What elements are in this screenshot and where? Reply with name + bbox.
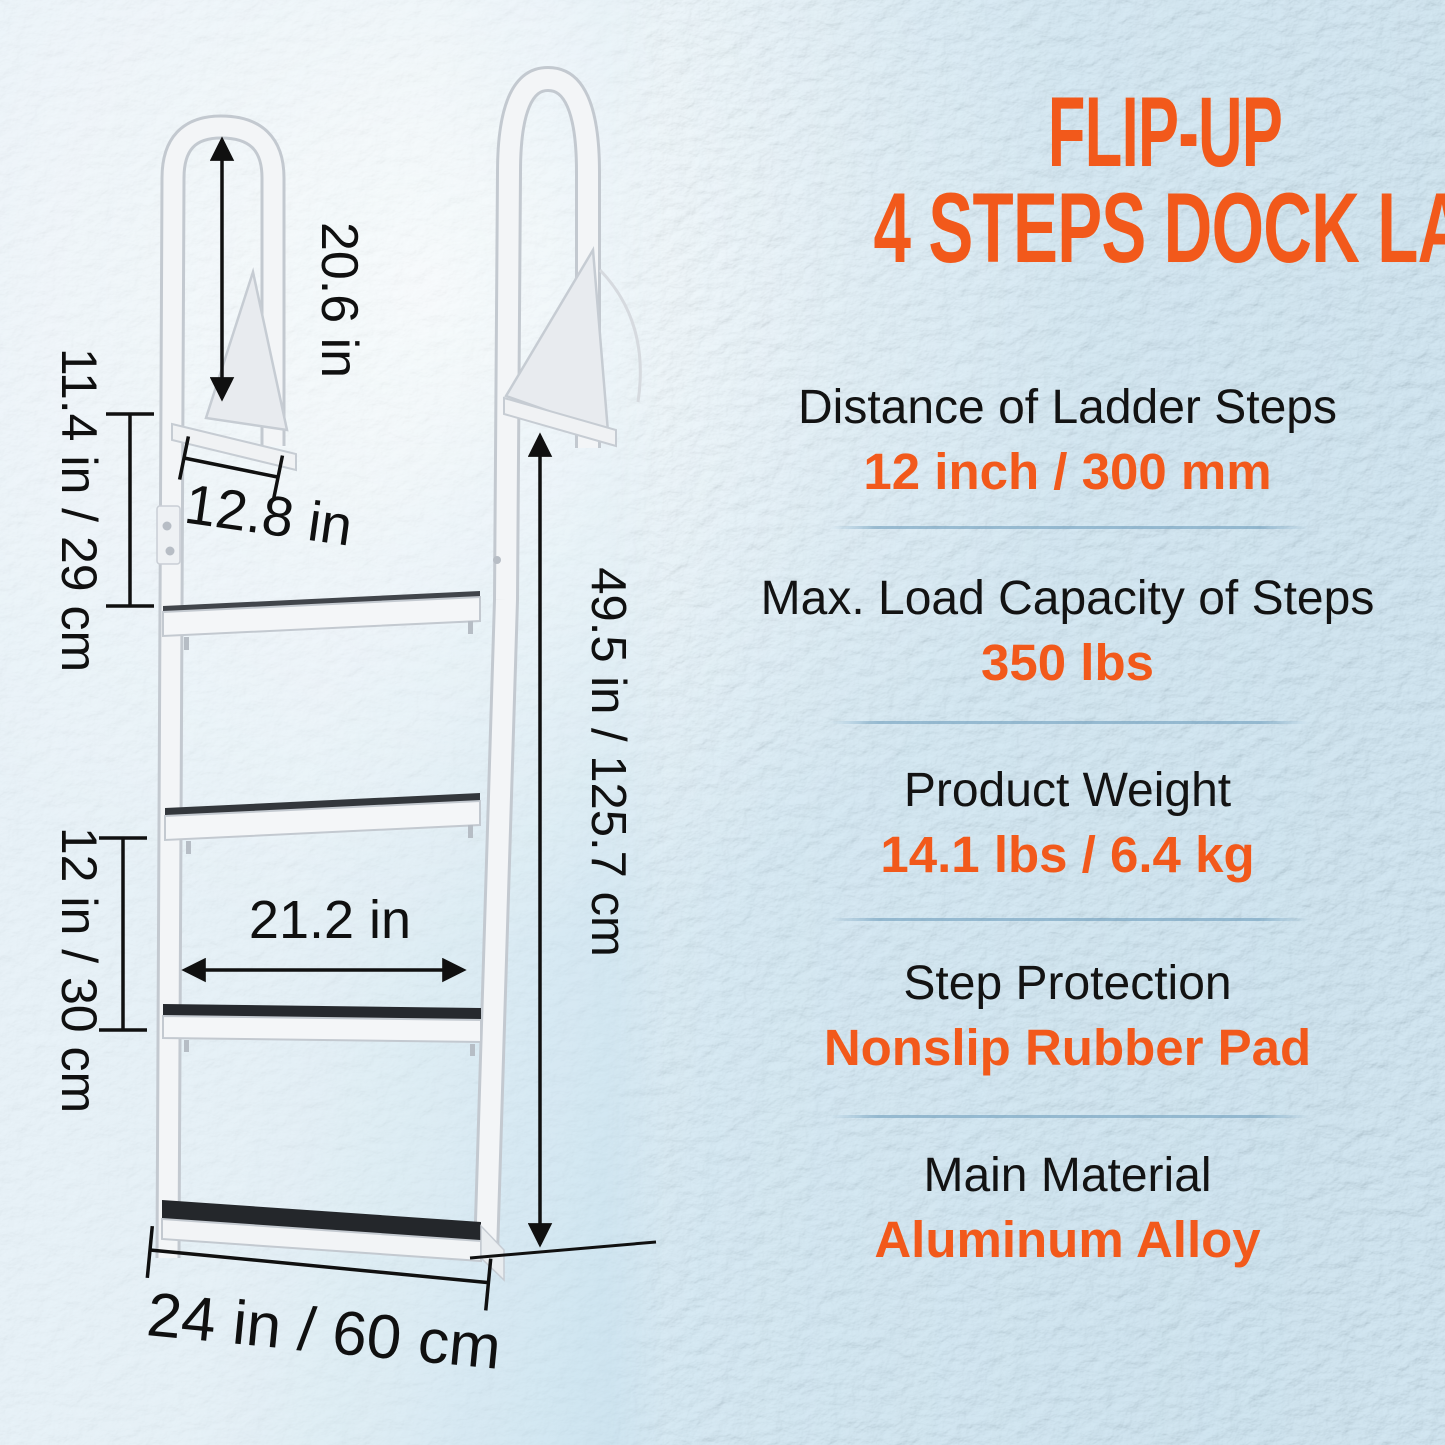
spec-label: Max. Load Capacity of Steps xyxy=(690,571,1445,627)
spec-value: 14.1 lbs / 6.4 kg xyxy=(690,827,1445,883)
upper-rail-label: 11.4 in / 29 cm xyxy=(51,348,107,672)
rail-splice xyxy=(157,506,180,564)
divider xyxy=(830,721,1308,724)
product-infographic: 20.6 in 11.4 in / 29 cm 12.8 in 12 in / … xyxy=(0,0,1445,1445)
step-width-label: 21.2 in xyxy=(249,890,411,950)
divider xyxy=(830,526,1308,529)
left-rail-hoop xyxy=(157,127,296,1258)
product-title: FLIP-UP 4 STEPS DOCK LADDER xyxy=(690,84,1445,276)
overall-width-label: 24 in / 60 cm xyxy=(144,1280,504,1383)
upper-rail-measure xyxy=(106,414,154,606)
spec-value: 350 lbs xyxy=(690,635,1445,691)
spec-main-material: Main Material Aluminum Alloy xyxy=(690,1148,1445,1268)
spec-product-weight: Product Weight 14.1 lbs / 6.4 kg xyxy=(690,763,1445,883)
divider xyxy=(830,918,1308,921)
spec-value: Nonslip Rubber Pad xyxy=(690,1020,1445,1076)
step-spacing-label: 12 in / 30 cm xyxy=(51,827,107,1113)
spec-label: Main Material xyxy=(690,1148,1445,1204)
spec-value: Aluminum Alloy xyxy=(690,1212,1445,1268)
spec-label: Product Weight xyxy=(690,763,1445,819)
ladder-step-3 xyxy=(163,1004,481,1056)
spec-max-load: Max. Load Capacity of Steps 350 lbs xyxy=(690,571,1445,691)
flip-cable xyxy=(600,270,640,402)
spec-label: Distance of Ladder Steps xyxy=(690,380,1445,436)
title-line-1: FLIP-UP xyxy=(690,84,1445,180)
ladder-step-2 xyxy=(165,793,480,854)
hoop-height-label: 20.6 in xyxy=(310,222,368,378)
divider xyxy=(830,1115,1308,1118)
plate-width-label: 12.8 in xyxy=(181,472,356,558)
spec-step-protection: Step Protection Nonslip Rubber Pad xyxy=(690,956,1445,1076)
spec-label: Step Protection xyxy=(690,956,1445,1012)
spec-distance-of-steps: Distance of Ladder Steps 12 inch / 300 m… xyxy=(690,380,1445,500)
ladder-step-1 xyxy=(163,591,480,650)
ladder-length-label: 49.5 in / 125.7 cm xyxy=(581,567,635,957)
title-line-2: 4 STEPS DOCK LADDER xyxy=(690,180,1445,276)
ladder-diagram: 20.6 in 11.4 in / 29 cm 12.8 in 12 in / … xyxy=(0,0,700,1445)
spec-value: 12 inch / 300 mm xyxy=(690,444,1445,500)
